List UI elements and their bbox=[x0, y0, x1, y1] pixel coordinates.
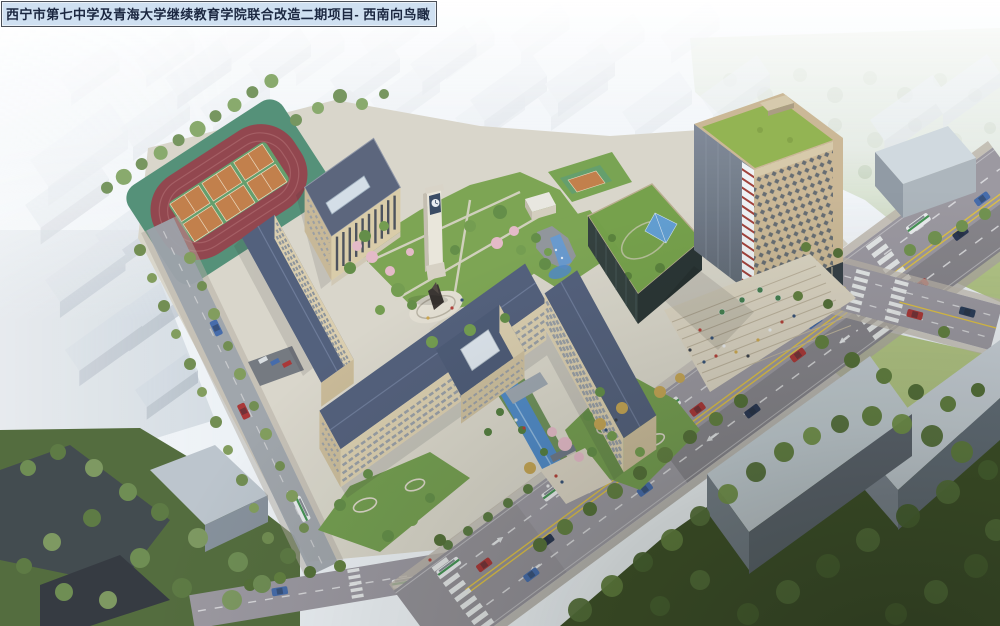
rendering-canvas: 西宁市第七中学及青海大学继续教育学院联合改造二期项目- 西南向鸟瞰 bbox=[0, 0, 1000, 626]
aerial-rendering bbox=[0, 0, 1000, 626]
project-title: 西宁市第七中学及青海大学继续教育学院联合改造二期项目- 西南向鸟瞰 bbox=[6, 7, 430, 22]
atmosphere-veil bbox=[0, 0, 1000, 626]
title-box: 西宁市第七中学及青海大学继续教育学院联合改造二期项目- 西南向鸟瞰 bbox=[1, 1, 437, 27]
